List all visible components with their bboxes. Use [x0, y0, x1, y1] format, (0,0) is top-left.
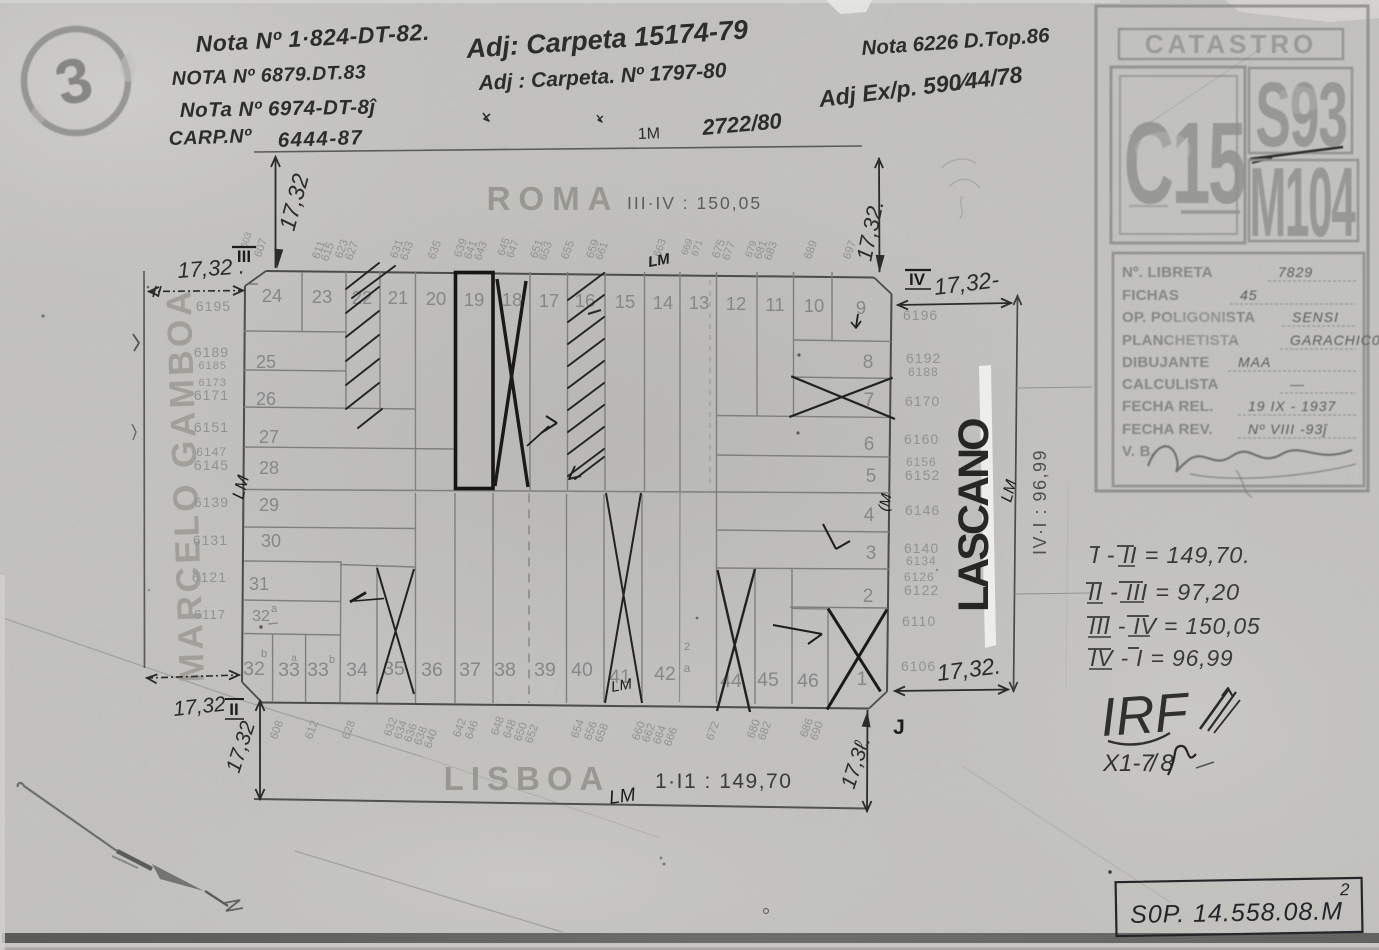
svg-text:6196: 6196 — [903, 307, 938, 323]
svg-text:a: a — [271, 603, 278, 615]
svg-text:13: 13 — [689, 292, 710, 313]
svg-text:3: 3 — [866, 543, 877, 564]
svg-text:MAA: MAA — [1238, 354, 1271, 370]
svg-text:14: 14 — [653, 292, 674, 313]
svg-text:36: 36 — [421, 659, 443, 681]
svg-text:30: 30 — [261, 531, 281, 551]
svg-text:6131: 6131 — [193, 532, 228, 548]
svg-text:20: 20 — [426, 288, 447, 309]
svg-text:45: 45 — [757, 669, 779, 691]
svg-text:8: 8 — [863, 352, 874, 373]
svg-text:a: a — [291, 653, 297, 664]
svg-text:6121: 6121 — [192, 569, 227, 585]
svg-text:6188: 6188 — [908, 365, 939, 379]
svg-text:IV - I = 96,99: IV - I = 96,99 — [1090, 645, 1234, 671]
svg-text:6145: 6145 — [194, 457, 229, 473]
svg-text:6195: 6195 — [196, 298, 231, 314]
svg-text:7829: 7829 — [1278, 264, 1313, 280]
svg-text:6444-87: 6444-87 — [277, 126, 364, 152]
svg-text:b: b — [329, 654, 335, 666]
svg-text:IV·I : 96,99: IV·I : 96,99 — [1030, 449, 1050, 555]
svg-text:6192: 6192 — [906, 350, 941, 366]
svg-text:I - II = 149,70.: I - II = 149,70. — [1092, 542, 1250, 568]
svg-text:DIBUJANTE: DIBUJANTE — [1122, 354, 1210, 371]
svg-text:18: 18 — [502, 289, 523, 310]
svg-text:CALCULISTA: CALCULISTA — [1122, 376, 1219, 393]
svg-text:IRF: IRF — [1099, 682, 1193, 748]
svg-text:CATASTRO: CATASTRO — [1145, 29, 1318, 59]
svg-text:6: 6 — [864, 434, 875, 455]
svg-text:46: 46 — [797, 670, 819, 692]
svg-text:6152: 6152 — [905, 467, 940, 483]
svg-text:LISBOA: LISBOA — [444, 760, 611, 797]
svg-text:Nº VIII -93ĵ: Nº VIII -93ĵ — [1248, 421, 1328, 437]
svg-text:32: 32 — [252, 608, 270, 625]
svg-text:19 IX - 1937: 19 IX - 1937 — [1248, 398, 1336, 414]
svg-text:5: 5 — [866, 466, 877, 487]
svg-text:FECHA REV.: FECHA REV. — [1122, 421, 1213, 438]
svg-text:2: 2 — [1339, 880, 1350, 899]
svg-text:IV: IV — [909, 270, 926, 289]
svg-text:1: 1 — [857, 668, 868, 690]
svg-text:FECHA REL.: FECHA REL. — [1122, 398, 1213, 415]
svg-text:II - III = 97,20: II - III = 97,20 — [1088, 579, 1240, 605]
svg-text:39: 39 — [534, 659, 556, 681]
svg-text:23: 23 — [312, 286, 333, 307]
svg-text:III - IV = 150,05: III - IV = 150,05 — [1089, 613, 1261, 639]
svg-text:LM: LM — [608, 784, 637, 808]
svg-text:11: 11 — [765, 294, 784, 315]
svg-text:6139: 6139 — [194, 494, 229, 510]
svg-text:ROMA: ROMA — [487, 180, 620, 217]
svg-text:40: 40 — [571, 659, 593, 681]
svg-text:6110: 6110 — [902, 613, 936, 629]
svg-text:CARP.Nº: CARP.Nº — [168, 125, 252, 150]
svg-text:17: 17 — [539, 290, 560, 311]
svg-text:S0P. 14.558.08.M: S0P. 14.558.08.M — [1130, 897, 1343, 929]
svg-text:6189: 6189 — [194, 344, 229, 360]
svg-text:34: 34 — [346, 659, 368, 681]
svg-text:II: II — [229, 700, 238, 719]
svg-text:LASCANO: LASCANO — [950, 419, 998, 612]
svg-text:6151: 6151 — [194, 419, 229, 435]
svg-text:J: J — [893, 716, 905, 739]
svg-text:6170: 6170 — [905, 393, 940, 409]
svg-text:28: 28 — [259, 458, 279, 478]
svg-text:—: — — [1289, 376, 1305, 392]
svg-text:24: 24 — [262, 285, 283, 306]
svg-text:17,32 .: 17,32 . — [177, 253, 246, 283]
svg-text:2: 2 — [863, 586, 874, 607]
svg-text:38: 38 — [494, 659, 516, 681]
svg-text:Nº. LIBRETA: Nº. LIBRETA — [1122, 264, 1213, 281]
svg-text:21: 21 — [388, 287, 409, 308]
svg-text:a: a — [684, 661, 691, 675]
svg-text:19: 19 — [464, 289, 485, 310]
svg-text:26: 26 — [256, 389, 276, 409]
svg-text:12: 12 — [726, 293, 747, 314]
svg-text:III·IV : 150,05: III·IV : 150,05 — [627, 193, 762, 213]
svg-text:6106: 6106 — [901, 658, 936, 674]
svg-text:6122: 6122 — [904, 582, 939, 598]
svg-text:2: 2 — [684, 641, 690, 653]
svg-text:27: 27 — [259, 427, 279, 447]
svg-text:10: 10 — [804, 295, 825, 316]
svg-text:15: 15 — [615, 291, 636, 312]
svg-text:6160: 6160 — [904, 431, 939, 447]
svg-text:31: 31 — [249, 574, 269, 594]
svg-text:FICHAS: FICHAS — [1122, 287, 1179, 304]
svg-text:V. B.: V. B. — [1122, 443, 1155, 460]
svg-text:25: 25 — [256, 352, 276, 372]
svg-text:6146: 6146 — [905, 502, 940, 518]
svg-text:37: 37 — [459, 659, 481, 681]
svg-text:X1-7̸ 8: X1-7̸ 8 — [1102, 750, 1174, 777]
svg-text:NoTa Nº 6974-DT-8ĵ: NoTa Nº 6974-DT-8ĵ — [180, 96, 378, 122]
svg-text:42: 42 — [654, 663, 676, 685]
svg-text:C15: C15 — [1124, 99, 1245, 229]
svg-text:6117: 6117 — [194, 607, 226, 622]
svg-text:1M: 1M — [638, 125, 661, 143]
svg-text:M104: M104 — [1250, 148, 1356, 258]
svg-text:33: 33 — [307, 659, 329, 681]
svg-text:6134: 6134 — [906, 554, 937, 568]
svg-text:6185: 6185 — [199, 360, 227, 372]
svg-text:GARACHIC0: GARACHIC0 — [1290, 332, 1379, 348]
svg-text:1·I1 : 149,70: 1·I1 : 149,70 — [655, 770, 792, 793]
svg-text:32: 32 — [243, 658, 265, 680]
svg-text:6171: 6171 — [194, 387, 229, 403]
svg-text:45: 45 — [1240, 287, 1258, 303]
svg-text:b: b — [261, 648, 267, 660]
svg-text:4: 4 — [864, 505, 875, 526]
svg-text:SENSI: SENSI — [1292, 309, 1339, 325]
svg-text:29: 29 — [259, 495, 279, 515]
